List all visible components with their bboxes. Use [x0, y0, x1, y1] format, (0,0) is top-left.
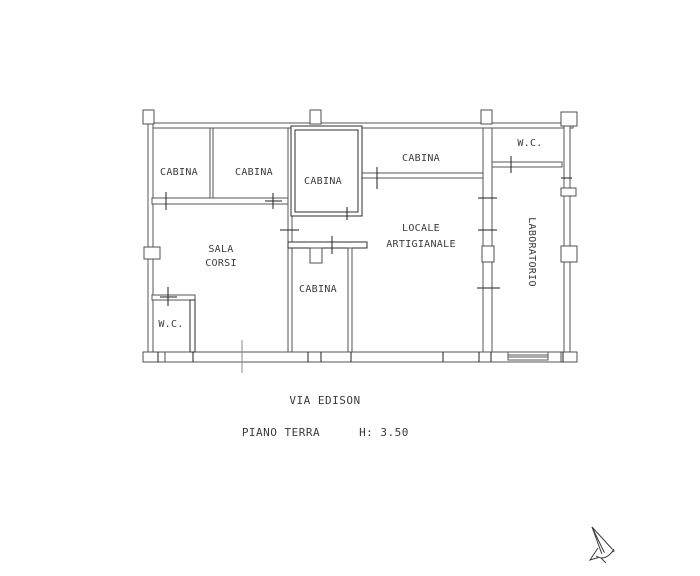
room-label-cabina-top-center: CABINA — [304, 176, 342, 187]
cabina-box-inner — [295, 130, 358, 212]
wall-outer-right — [564, 123, 570, 357]
floor-plan-canvas: CABINA CABINA CABINA CABINA W.C. SALA CO… — [0, 0, 700, 576]
wall-cabina5-top — [288, 242, 367, 248]
wall-outer-left — [148, 123, 153, 357]
room-label-cabina-top-mid-left: CABINA — [235, 167, 273, 178]
room-label-sala: SALA — [208, 244, 233, 255]
room-label-artigianale: ARTIGIANALE — [386, 239, 456, 250]
captions: VIA EDISON PIANO TERRA H: 3.50 — [242, 394, 409, 439]
column-left-mid — [144, 247, 160, 259]
wall-cabina5-right — [348, 248, 352, 352]
column-center-mid — [482, 246, 494, 262]
column-top-right — [561, 112, 577, 126]
room-label-cabina-top-left: CABINA — [160, 167, 198, 178]
wall-cabina1-cabina2 — [210, 128, 213, 204]
column-top-left — [143, 110, 154, 124]
column-right-upper — [561, 188, 576, 196]
column-cabina5-jamb — [310, 248, 322, 263]
room-label-corsi: CORSI — [205, 258, 237, 269]
height-label: H: 3.50 — [359, 426, 409, 439]
room-label-cabina-lower: CABINA — [299, 284, 337, 295]
column-top-mid — [310, 110, 321, 124]
room-label-wc-upper: W.C. — [517, 138, 542, 149]
column-top-mid-right — [481, 110, 492, 124]
floor-plan-page: CABINA CABINA CABINA CABINA W.C. SALA CO… — [0, 0, 700, 576]
wall-locale-laboratorio — [483, 128, 492, 352]
room-label-laboratorio: LABORATORIO — [526, 217, 537, 287]
column-bottom-left — [143, 352, 165, 362]
room-label-locale: LOCALE — [402, 223, 440, 234]
room-label-cabina-top-right: CABINA — [402, 153, 440, 164]
floor-label: PIANO TERRA — [242, 426, 320, 439]
north-arrow-icon — [590, 527, 614, 563]
wall-wc-laboratorio — [492, 162, 562, 167]
room-label-wc-lower: W.C. — [158, 319, 183, 330]
column-right-mid — [561, 246, 577, 262]
wall-cabina4-locale — [362, 173, 483, 178]
street-label: VIA EDISON — [289, 394, 360, 407]
wall-wc2-right — [190, 300, 195, 352]
